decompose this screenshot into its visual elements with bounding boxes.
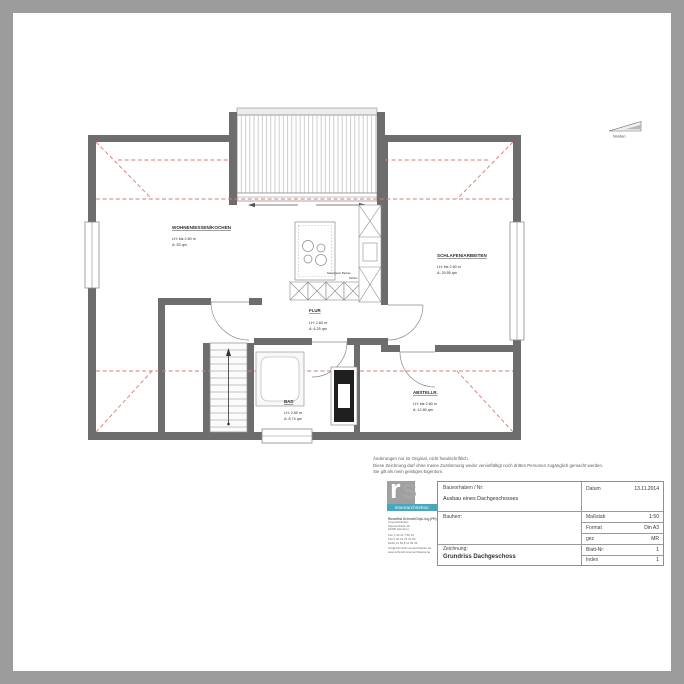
index-label: Index <box>586 557 598 563</box>
room-height-schlafen: LH: bis 2.60 m <box>437 265 461 269</box>
title-block: r s innenarchitektur Roswitha Schmidt Di… <box>387 481 664 566</box>
door-arc-schlafen <box>388 305 423 340</box>
room-height-flur: LH: 2.60 m <box>309 321 327 325</box>
firm-line: 22305 Hamburg <box>388 528 437 532</box>
project-value: Ausbau eines Dachgeschosses <box>443 496 518 502</box>
kitchen-cooling-label: Kühlen <box>349 276 358 280</box>
disclaimer-note: Änderungen nur im Original, nicht handsc… <box>373 456 665 476</box>
firm-line: www.schmidt-innenarchitektur.de <box>388 551 437 555</box>
firm-logo: r s innenarchitektur Roswitha Schmidt Di… <box>387 481 437 566</box>
logo-letter-r: r <box>390 474 401 505</box>
disclaimer-line-1: Änderungen nur im Original, nicht handsc… <box>373 456 665 463</box>
room-label-schlafen: SCHLAFEN/ARBEITEN <box>437 253 487 258</box>
balcony-deck <box>237 108 377 193</box>
room-label-bad: BAD <box>284 399 294 404</box>
door-arc-abstellraum <box>400 352 435 387</box>
slide-arrow-left-icon <box>248 203 255 207</box>
room-label-abstellraum: ABSTELLR. <box>413 390 438 395</box>
disclaimer-line-2: Diese Zeichnung darf ohne meine Zustimmu… <box>373 463 665 470</box>
staircase <box>210 343 247 432</box>
room-area-abstellraum: A: 12.80 qm <box>413 408 433 412</box>
room-area-flur: A: 6.25 qm <box>309 327 327 331</box>
format-value: Din A3 <box>623 525 659 531</box>
firm-line: Mobil 01 59 8 11 06 43 <box>388 542 437 546</box>
room-height-bad: LH: 2.60 m <box>284 411 302 415</box>
index-value: 1 <box>623 557 659 563</box>
room-label-wohnen: WOHNEN/ESSEN/KOCHEN <box>172 225 232 230</box>
bathtub <box>256 352 304 406</box>
room-height-wohnen: LH: bis 2.60 m <box>172 237 196 241</box>
room-height-abstellraum: LH: bis 2.60 m <box>413 402 437 406</box>
sheet-label: Blatt-Nr: <box>586 547 604 553</box>
scale-value: 1:50 <box>623 514 659 520</box>
room-label-flur: FLUR <box>309 308 322 313</box>
north-label: Norden <box>613 135 625 139</box>
client-label: Bauherr: <box>443 514 462 520</box>
floor-plan: Norden WOHNEN/ESSEN/KOCHEN LH: bis 2.60 … <box>0 0 684 684</box>
door-arc-hall <box>211 302 249 340</box>
room-area-schlafen: A: 29.55 qm <box>437 271 457 275</box>
room-area-bad: A: 8.74 qm <box>284 417 302 421</box>
date-value: 13.11.2014 <box>623 486 659 492</box>
north-arrow-icon: Norden <box>609 122 641 139</box>
sheet-value: 1 <box>623 547 659 553</box>
tall-cabinet <box>359 205 381 302</box>
room-area-wohnen: A: 53 qm <box>172 243 187 247</box>
firm-address: Roswitha Schmidt Dipl.-Ing.(FH) Innenarc… <box>388 517 437 555</box>
drawing-value: Grundriss Dachgeschoss <box>443 554 516 560</box>
project-label: Bauvorhaben / Nr: <box>443 485 484 491</box>
drawing-label: Zeichnung: <box>443 546 468 552</box>
format-label: Format <box>586 525 602 531</box>
title-block-table: Bauvorhaben / Nr: Ausbau eines Dachgesch… <box>437 481 664 566</box>
drawn-value: MR <box>623 536 659 542</box>
drawing-sheet: { "north": { "label": "Norden" }, "rooms… <box>0 0 684 684</box>
logo-letter-s: s <box>402 474 417 505</box>
kitchen-appliances-label: Dampfgarer Backen <box>327 271 351 275</box>
scale-label: Maßstab <box>586 514 605 520</box>
drawn-label: gez <box>586 536 594 542</box>
shaft <box>331 367 357 425</box>
date-label: Datum <box>586 486 601 492</box>
logo-subtitle: innenarchitektur <box>387 504 437 511</box>
